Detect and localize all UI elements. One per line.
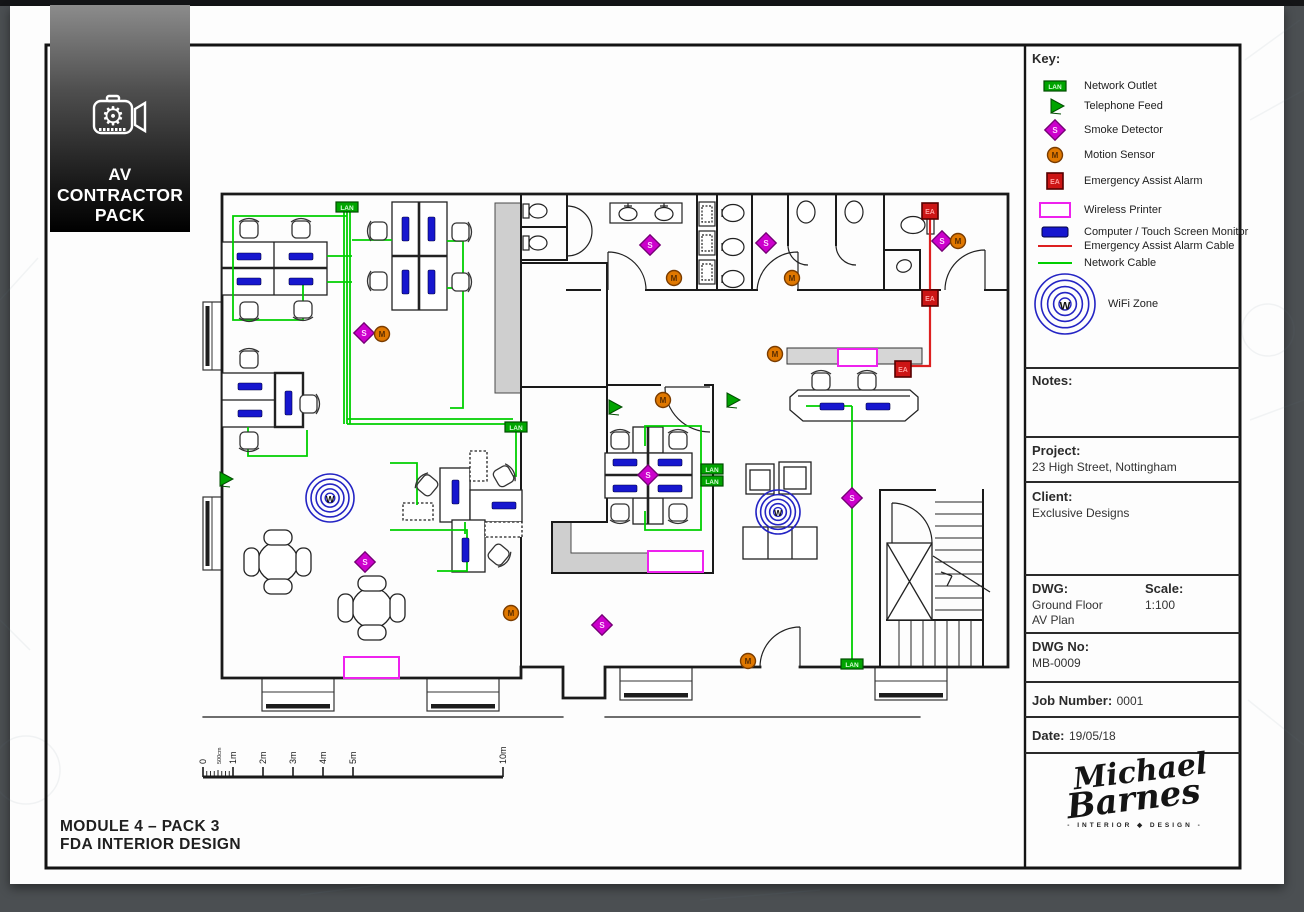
date-row: Date: 19/05/18 <box>1032 727 1116 745</box>
scale-bar-label: 1m <box>228 751 238 764</box>
svg-text:EA: EA <box>925 296 935 303</box>
printer-icon <box>1032 198 1084 222</box>
logo-text: AV CONTRACTOR PACK <box>50 165 190 225</box>
scale-bar-label: 0 <box>198 759 208 764</box>
network-cable <box>390 463 417 505</box>
computer-monitor-symbol <box>820 403 844 410</box>
computer-monitor-symbol <box>462 538 469 562</box>
computer-monitor-symbol <box>238 410 262 417</box>
office-chair <box>239 302 259 322</box>
svg-text:EA: EA <box>925 209 935 216</box>
svg-text:W: W <box>1060 300 1071 312</box>
office-chair <box>291 219 311 239</box>
key-item-ea: EAEmergency Assist Alarm <box>1032 170 1203 192</box>
wifi-symbol: W <box>1035 274 1095 334</box>
window-bay <box>203 497 222 570</box>
svg-text:M: M <box>772 350 779 359</box>
svg-text:S: S <box>849 494 855 503</box>
lan-symbol: LAN <box>841 659 863 669</box>
svg-text:S: S <box>647 241 653 250</box>
scale-bar-label: 3m <box>288 751 298 764</box>
wifi-icon: W <box>1032 271 1108 337</box>
key-item-label: Telephone Feed <box>1084 100 1163 112</box>
office-chair <box>368 221 388 241</box>
av-symbols: LANLANLANLANLANSSSSSSSSMMMMMMMMEAEAEAWW <box>220 202 966 678</box>
office-chair <box>300 394 320 414</box>
designer-signature: Michael Barnes - INTERIOR ◆ DESIGN - <box>1035 758 1235 860</box>
motion-symbol: M <box>768 347 783 362</box>
svg-text:W: W <box>774 508 782 518</box>
office-chair <box>668 430 688 450</box>
svg-text:M: M <box>671 274 678 283</box>
key-title: Key: <box>1032 51 1060 66</box>
svg-text:EA: EA <box>1050 179 1060 186</box>
office-chair <box>857 371 877 391</box>
computer-monitor-symbol <box>658 485 682 492</box>
tel-icon <box>1032 94 1084 118</box>
module-line-1: MODULE 4 – PACK 3 <box>60 818 241 836</box>
smoke-symbol: S <box>1045 120 1065 140</box>
logo-line-2: CONTRACTOR <box>50 185 190 205</box>
office-chair <box>610 504 630 524</box>
wifi-symbol: W <box>306 474 354 522</box>
ea-icon: EA <box>1032 169 1084 193</box>
svg-text:LAN: LAN <box>705 479 719 486</box>
key-item-label: Smoke Detector <box>1084 124 1163 136</box>
computer-monitor-symbol <box>613 485 637 492</box>
svg-text:⚙: ⚙ <box>101 102 124 132</box>
motion-symbol: M <box>504 606 519 621</box>
key-item-label: Network Cable <box>1084 257 1156 269</box>
computer-monitor-symbol <box>613 459 637 466</box>
logo-line-3: PACK <box>50 205 190 225</box>
office-chair <box>811 371 831 391</box>
dwg-no-label: DWG No: <box>1032 639 1089 654</box>
motion-symbol: M <box>741 654 756 669</box>
printer-symbol <box>838 349 877 366</box>
scale-bar-label: 500cm <box>217 747 223 764</box>
smoke-symbol: S <box>354 323 374 343</box>
computer-monitor-symbol <box>492 502 516 509</box>
network-cable <box>447 241 463 408</box>
svg-text:M: M <box>745 657 752 666</box>
smoke-symbol: S <box>355 552 375 572</box>
job-number-row: Job Number: 0001 <box>1032 692 1143 710</box>
office-chair <box>239 219 259 239</box>
key-item-wifi: WWiFi Zone <box>1032 272 1158 336</box>
office-chair <box>293 301 313 321</box>
printer-symbol <box>1040 203 1070 217</box>
window-bay <box>875 667 947 700</box>
svg-text:W: W <box>326 494 335 504</box>
scale-value: 1:100 <box>1145 598 1175 612</box>
module-line-2: FDA INTERIOR DESIGN <box>60 836 241 854</box>
client-label: Client: <box>1032 489 1072 504</box>
motion-symbol: M <box>656 393 671 408</box>
project-label: Project: <box>1032 443 1080 458</box>
office-chair <box>668 504 688 524</box>
lan-symbol: LAN <box>701 464 723 474</box>
motion-symbol: M <box>667 271 682 286</box>
smoke-symbol: S <box>640 235 660 255</box>
svg-text:M: M <box>1052 151 1059 160</box>
cable-runs <box>233 212 930 659</box>
printer-symbol <box>344 657 399 678</box>
logo-line-1: AV <box>50 165 190 185</box>
key-item-label: Emergency Assist Alarm Cable <box>1084 240 1234 252</box>
tel-symbol <box>609 400 622 415</box>
ea-symbol: EA <box>922 203 938 219</box>
computer-monitor-symbol <box>428 217 435 241</box>
dwg-no-value: MB-0009 <box>1032 656 1081 670</box>
office-chair <box>239 432 259 452</box>
svg-text:M: M <box>508 609 515 618</box>
key-item-label: Motion Sensor <box>1084 149 1155 161</box>
svg-text:S: S <box>645 471 651 480</box>
scale-bar-label: 10m <box>498 746 508 764</box>
svg-text:S: S <box>599 621 605 630</box>
dwg-label: DWG: <box>1032 581 1068 596</box>
scale-bar-label: 4m <box>318 751 328 764</box>
key-item-motion: MMotion Sensor <box>1032 144 1155 166</box>
motion-icon: M <box>1032 143 1084 167</box>
svg-text:LAN: LAN <box>1048 84 1062 91</box>
job-number-label: Job Number: <box>1032 693 1112 708</box>
office-chair <box>239 349 259 369</box>
lan-symbol: LAN <box>336 202 358 212</box>
key-item-smoke: SSmoke Detector <box>1032 119 1163 141</box>
computer-monitor-symbol <box>237 278 261 285</box>
motion-symbol: M <box>1048 148 1063 163</box>
computer-monitor-symbol <box>402 270 409 294</box>
smoke-symbol: S <box>932 231 952 251</box>
smoke-symbol: S <box>592 615 612 635</box>
svg-text:LAN: LAN <box>845 662 859 669</box>
svg-text:LAN: LAN <box>509 425 523 432</box>
svg-text:M: M <box>955 237 962 246</box>
computer-monitor-symbol <box>289 253 313 260</box>
ea-symbol: EA <box>895 361 911 377</box>
svg-text:M: M <box>379 330 386 339</box>
motion-symbol: M <box>785 271 800 286</box>
office-chair <box>610 430 630 450</box>
motion-symbol: M <box>375 327 390 342</box>
dwg-value-2: AV Plan <box>1032 613 1074 627</box>
svg-text:LAN: LAN <box>340 205 354 212</box>
svg-text:S: S <box>362 558 368 567</box>
tel-symbol <box>727 393 740 408</box>
date-value: 19/05/18 <box>1069 729 1116 743</box>
computer-monitor-symbol <box>237 253 261 260</box>
projector-gear-icon: ⚙ <box>91 93 149 141</box>
smoke-symbol: S <box>756 233 776 253</box>
svg-text:S: S <box>1052 126 1058 135</box>
svg-text:S: S <box>939 237 945 246</box>
lan-symbol: LAN <box>1044 81 1066 91</box>
scale-bar-label: 2m <box>258 751 268 764</box>
application-window: LANLANLANLANLANSSSSSSSSMMMMMMMMEAEAEAWW … <box>0 0 1304 912</box>
key-item-printer: Wireless Printer <box>1032 199 1162 221</box>
job-number-value: 0001 <box>1117 694 1144 708</box>
smoke-symbol: S <box>842 488 862 508</box>
window-bay <box>203 302 222 370</box>
computer-monitor-symbol <box>866 403 890 410</box>
svg-text:S: S <box>763 239 769 248</box>
computer-monitor-symbol <box>402 217 409 241</box>
module-footer: MODULE 4 – PACK 3 FDA INTERIOR DESIGN <box>60 818 241 855</box>
tel-symbol <box>1051 99 1064 114</box>
computer-monitor-symbol <box>238 383 262 390</box>
office-chair <box>486 542 514 570</box>
svg-text:S: S <box>361 329 367 338</box>
dwg-value-1: Ground Floor <box>1032 598 1103 612</box>
scale-bar: 0500cm1m2m3m4m5m10m <box>198 746 508 777</box>
motion-symbol: M <box>951 234 966 249</box>
project-value: 23 High Street, Nottingham <box>1032 460 1177 474</box>
office-chair <box>368 271 388 291</box>
date-label: Date: <box>1032 728 1065 743</box>
printer-symbol <box>648 551 703 572</box>
computer-monitor-symbol <box>452 480 459 504</box>
key-item-label: Wireless Printer <box>1084 204 1162 216</box>
computer-monitor-symbol <box>285 391 292 415</box>
smoke-icon: S <box>1032 118 1084 142</box>
computer-monitor-symbol <box>289 278 313 285</box>
key-item-tel: Telephone Feed <box>1032 95 1163 117</box>
window-bay <box>620 667 692 700</box>
window-bay <box>427 678 499 711</box>
key-item-label: Emergency Assist Alarm <box>1084 175 1203 187</box>
tel-symbol <box>220 472 233 487</box>
scale-label: Scale: <box>1145 581 1183 596</box>
svg-text:LAN: LAN <box>705 467 719 474</box>
lan-symbol: LAN <box>701 476 723 486</box>
av-contractor-pack-logo: ⚙ AV CONTRACTOR PACK <box>50 5 190 232</box>
key-item-label: Network Outlet <box>1084 80 1157 92</box>
svg-text:EA: EA <box>898 367 908 374</box>
office-chair <box>452 272 472 292</box>
ea-symbol: EA <box>922 290 938 306</box>
scale-bar-label: 5m <box>348 751 358 764</box>
computer-monitor-symbol <box>658 459 682 466</box>
notes-label: Notes: <box>1032 373 1072 388</box>
client-value: Exclusive Designs <box>1032 506 1129 520</box>
key-item-label: WiFi Zone <box>1108 298 1158 310</box>
window-bay <box>262 678 334 711</box>
computer-monitor-symbol <box>428 270 435 294</box>
svg-text:M: M <box>660 396 667 405</box>
svg-text:M: M <box>789 274 796 283</box>
lan-symbol: LAN <box>505 422 527 432</box>
office-chair <box>452 222 472 242</box>
ea-symbol: EA <box>1047 173 1063 189</box>
